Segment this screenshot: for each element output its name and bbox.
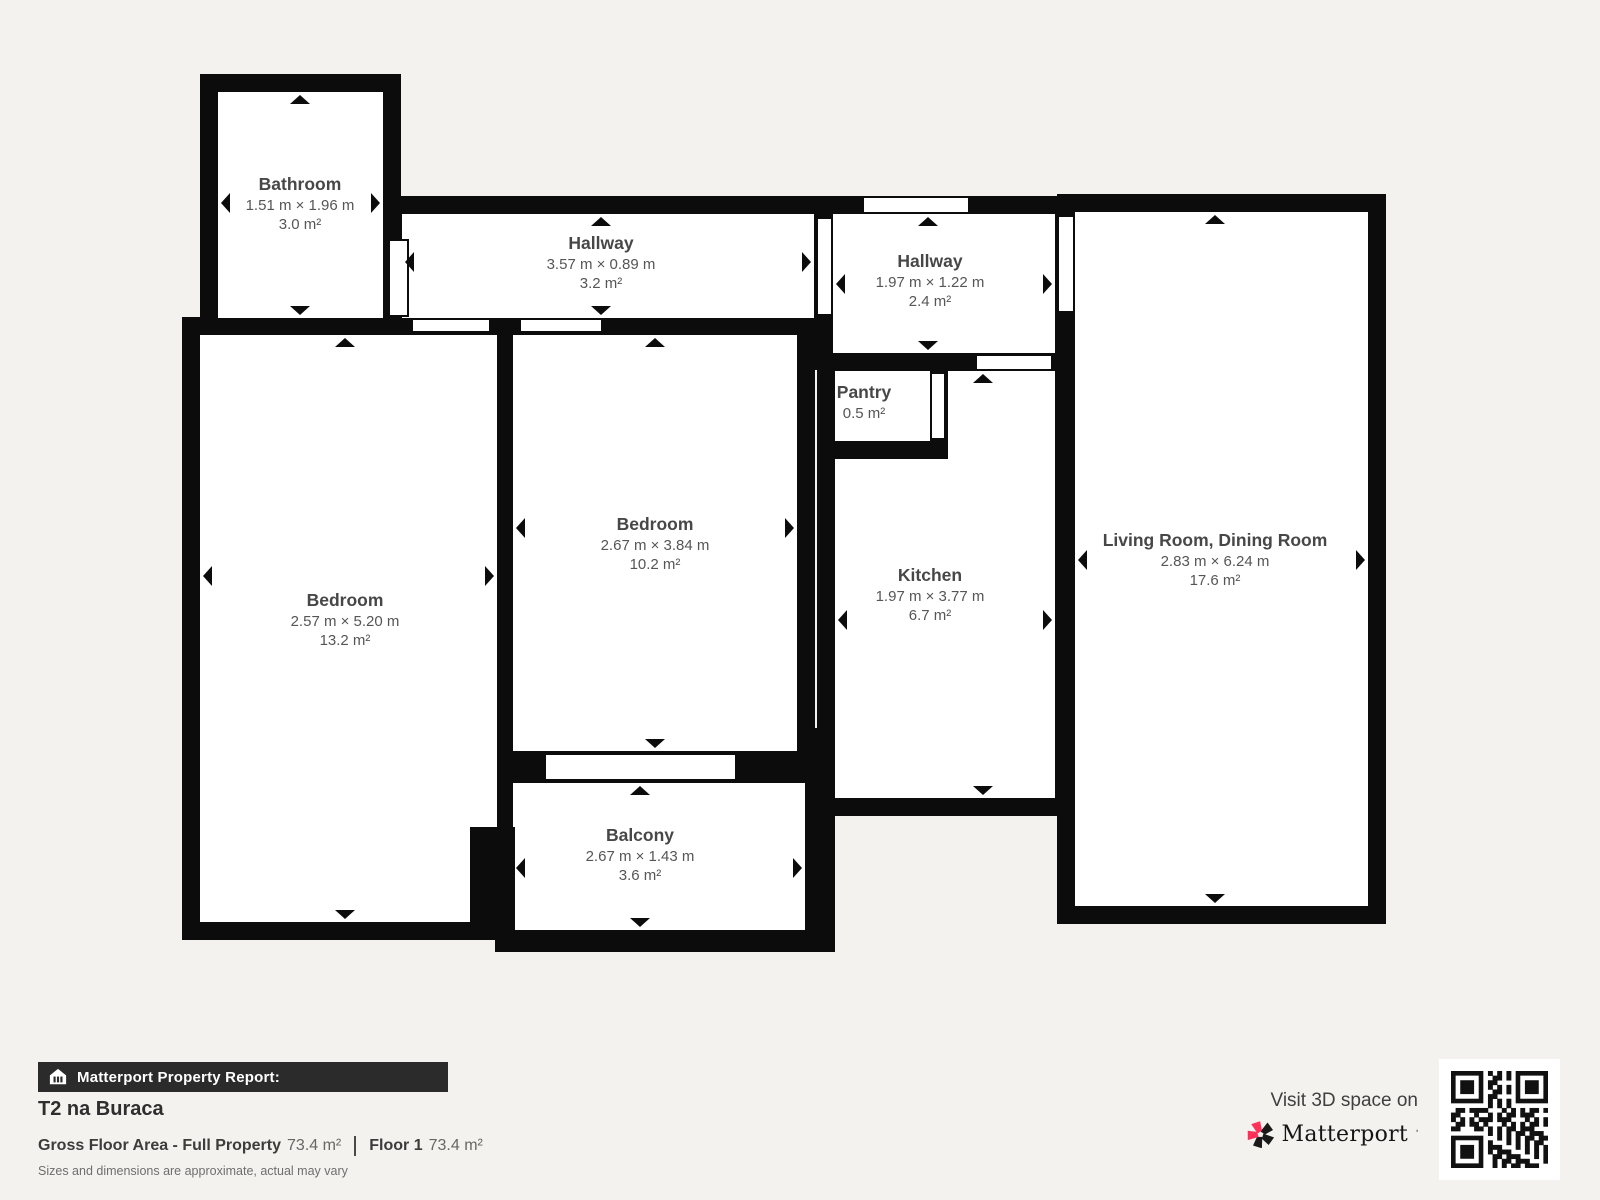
room-area: 17.6 m² [1190, 572, 1241, 589]
room-area: 3.2 m² [580, 275, 623, 292]
room-area: 13.2 m² [320, 632, 371, 649]
room-title: Bedroom [307, 590, 384, 610]
disclaimer-text: Sizes and dimensions are approximate, ac… [38, 1164, 348, 1178]
room-area: 2.4 m² [909, 293, 952, 310]
room-title: Hallway [897, 251, 962, 271]
house-icon [49, 1068, 67, 1086]
room-dimensions: 1.97 m × 1.22 m [876, 274, 985, 291]
report-label: Matterport Property Report: [77, 1069, 280, 1086]
gross-floor-area-value: 73.4 m² [287, 1137, 341, 1155]
room-title: Kitchen [898, 565, 962, 585]
door-entry [863, 197, 969, 213]
room-title: Bathroom [259, 174, 342, 194]
area-summary: Gross Floor Area - Full Property 73.4 m²… [38, 1136, 483, 1156]
matterport-wordmark: Matterport [1282, 1122, 1409, 1147]
floor-label: Floor 1 [369, 1137, 422, 1155]
room-area: 3.6 m² [619, 867, 662, 884]
door-hall-kitchen [976, 355, 1052, 370]
room-title: Balcony [606, 825, 674, 845]
room-dimensions: 2.67 m × 3.84 m [601, 537, 710, 554]
room-area: 0.5 m² [843, 405, 886, 422]
visit-3d-text: Visit 3D space on [1247, 1090, 1418, 1112]
property-name: T2 na Buraca [38, 1098, 164, 1121]
door-hall-bedroom-m [520, 319, 602, 332]
door-hall-bedroom-l [412, 319, 490, 332]
door-bathroom [389, 240, 408, 316]
matterport-logo-icon [1247, 1121, 1274, 1148]
room-dimensions: 2.83 m × 6.24 m [1161, 553, 1270, 570]
door-hall-to-hall [817, 218, 832, 315]
room-dimensions: 1.51 m × 1.96 m [246, 197, 355, 214]
door-hall-living [1058, 216, 1074, 312]
qr-code [1439, 1059, 1560, 1180]
report-header-bar: Matterport Property Report: [38, 1062, 448, 1092]
room-dimensions: 1.97 m × 3.77 m [876, 588, 985, 605]
room-title: Bedroom [617, 514, 694, 534]
room-title: Living Room, Dining Room [1103, 530, 1328, 550]
divider [354, 1136, 356, 1156]
brand-row: Matterportʹ [1247, 1121, 1418, 1148]
promo-block: Visit 3D space on Matterportʹ [1247, 1090, 1418, 1148]
room-interiors [200, 92, 1368, 930]
gross-floor-area-label: Gross Floor Area - Full Property [38, 1137, 281, 1155]
room-area: 10.2 m² [630, 556, 681, 573]
room-title: Hallway [568, 233, 633, 253]
room-dimensions: 2.67 m × 1.43 m [586, 848, 695, 865]
door-balcony [545, 754, 736, 780]
trademark-mark: ʹ [1416, 1129, 1418, 1140]
room-dimensions: 3.57 m × 0.89 m [547, 256, 656, 273]
floor-plan: Bathroom 1.51 m × 1.96 m 3.0 m² Hallway … [0, 0, 1600, 1010]
room-title: Pantry [837, 382, 892, 402]
room-area: 3.0 m² [279, 216, 322, 233]
room-dimensions: 2.57 m × 5.20 m [291, 613, 400, 630]
room-area: 6.7 m² [909, 607, 952, 624]
door-pantry [931, 373, 945, 439]
floor-value: 73.4 m² [429, 1137, 483, 1155]
